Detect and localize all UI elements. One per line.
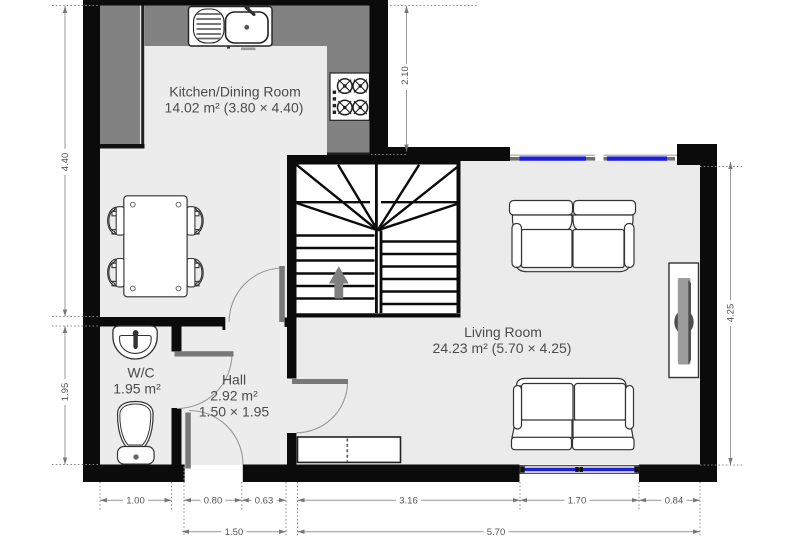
- svg-text:1.00: 1.00: [126, 496, 145, 507]
- svg-text:1.95 m²: 1.95 m²: [113, 381, 161, 397]
- svg-text:2.92 m²: 2.92 m²: [210, 388, 258, 404]
- svg-text:0.63: 0.63: [255, 496, 274, 507]
- svg-text:4.40: 4.40: [60, 153, 71, 172]
- svg-text:1.95: 1.95: [60, 383, 71, 402]
- svg-text:5.70: 5.70: [487, 527, 506, 537]
- svg-text:W/C: W/C: [127, 365, 154, 381]
- svg-text:Living Room: Living Room: [464, 324, 542, 340]
- svg-text:0.80: 0.80: [204, 496, 223, 507]
- svg-text:3.16: 3.16: [399, 496, 418, 507]
- svg-text:14.02 m² (3.80 × 4.40): 14.02 m² (3.80 × 4.40): [165, 99, 304, 115]
- svg-text:0.84: 0.84: [665, 496, 684, 507]
- svg-text:1.70: 1.70: [568, 496, 587, 507]
- svg-text:4.25: 4.25: [726, 304, 737, 323]
- svg-text:Kitchen/Dining Room: Kitchen/Dining Room: [169, 84, 301, 100]
- svg-text:24.23 m² (5.70 × 4.25): 24.23 m² (5.70 × 4.25): [433, 340, 572, 356]
- svg-text:Hall: Hall: [222, 372, 246, 388]
- svg-text:1.50 × 1.95: 1.50 × 1.95: [199, 404, 270, 420]
- svg-text:1.50: 1.50: [225, 527, 244, 537]
- svg-text:2.10: 2.10: [400, 66, 411, 85]
